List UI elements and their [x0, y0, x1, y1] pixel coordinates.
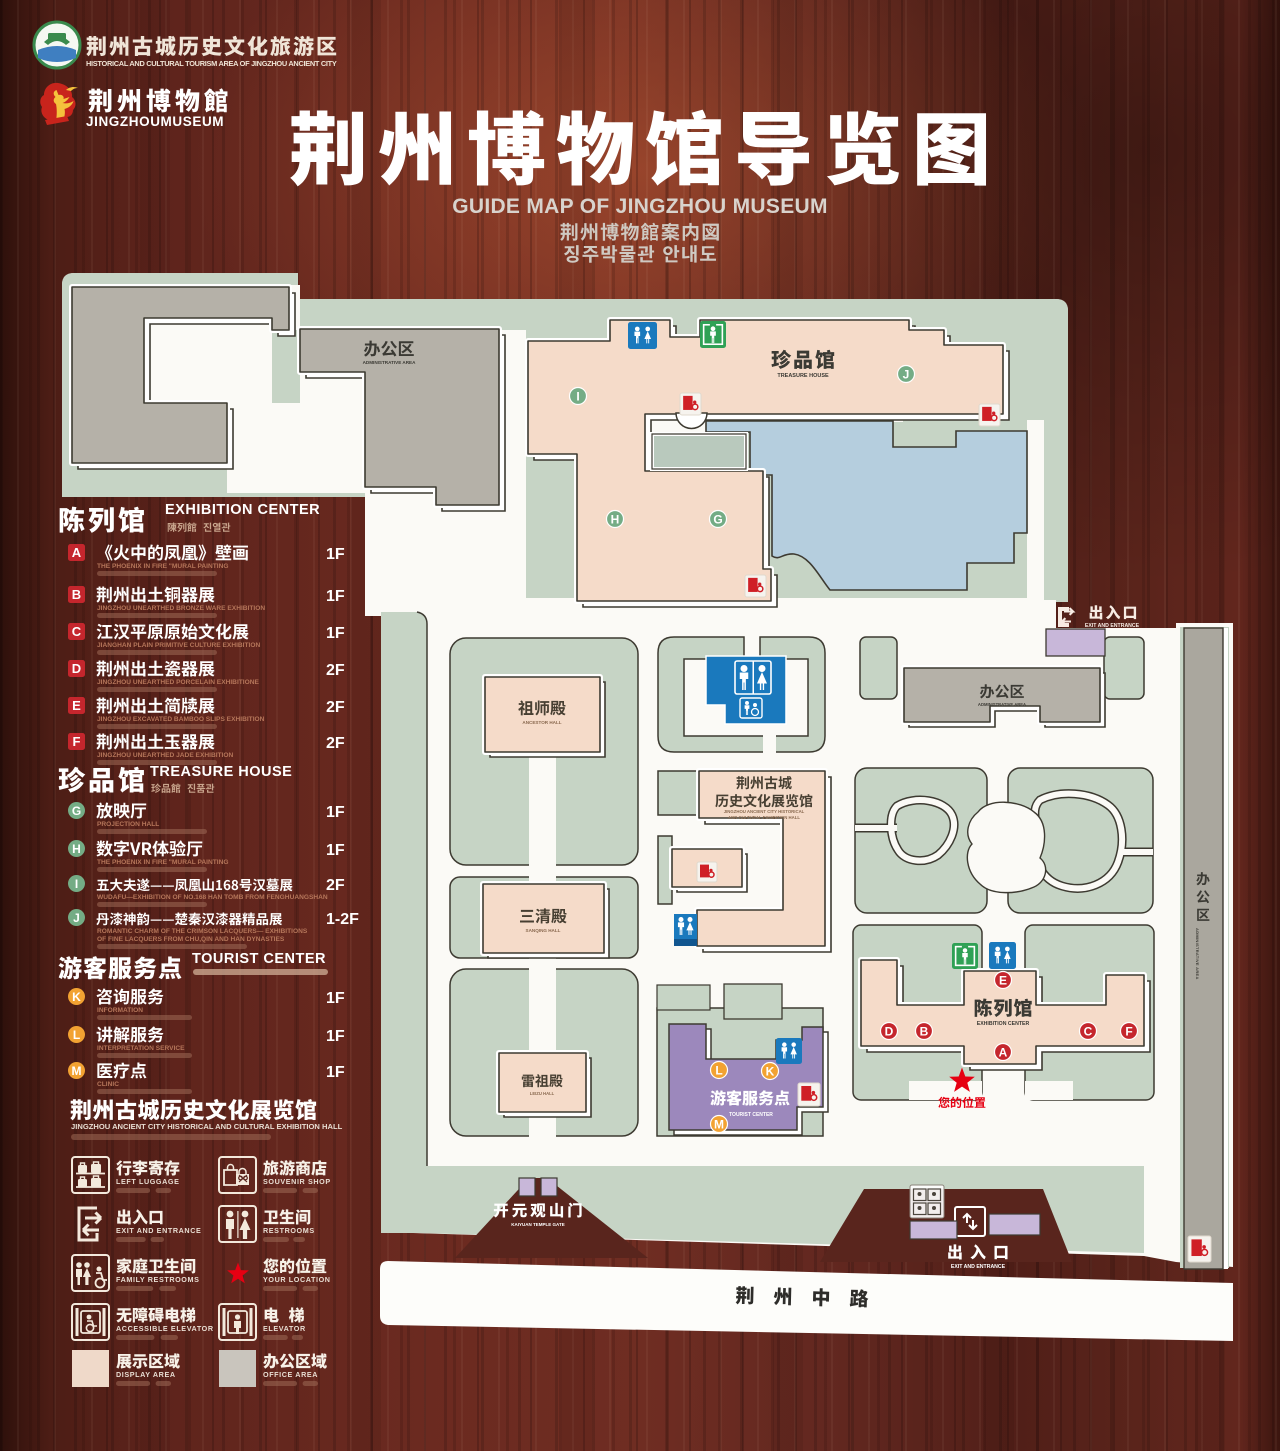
svg-text:L: L: [715, 1063, 722, 1077]
svg-text:INFORMATION: INFORMATION: [97, 1007, 143, 1014]
svg-text:E: E: [72, 698, 81, 713]
svg-text:K: K: [766, 1064, 775, 1078]
svg-text:G: G: [72, 804, 81, 818]
svg-text:AND CULTURAL EXHIBITION HALL: AND CULTURAL EXHIBITION HALL: [728, 815, 800, 820]
svg-text:PROJECTION HALL: PROJECTION HALL: [97, 821, 159, 828]
svg-text:B: B: [920, 1024, 929, 1038]
svg-text:ACCESSIBLE ELEVATOR: ACCESSIBLE ELEVATOR: [116, 1324, 214, 1333]
svg-text:2F: 2F: [326, 735, 345, 752]
svg-text:H: H: [72, 842, 81, 856]
svg-text:RESTROOMS: RESTROOMS: [263, 1226, 315, 1235]
svg-text:THE PHOENIX IN FIRE "MURAL PAI: THE PHOENIX IN FIRE "MURAL PAINTING: [97, 859, 228, 866]
svg-text:GUIDE MAP OF JINGZHOU MUSEUM: GUIDE MAP OF JINGZHOU MUSEUM: [452, 195, 828, 218]
svg-text:JINGZHOU UNEARTHED BRONZE WARE: JINGZHOU UNEARTHED BRONZE WARE EXHIBITIO…: [97, 605, 265, 612]
svg-text:M: M: [72, 1064, 82, 1078]
svg-text:OFFICE AREA: OFFICE AREA: [263, 1370, 318, 1379]
svg-text:JIANGHAN PLAIN PRIMITIVE CULTU: JIANGHAN PLAIN PRIMITIVE CULTURE EXHIBIT…: [97, 642, 261, 649]
svg-text:D: D: [885, 1024, 894, 1038]
svg-text:EXHIBITION CENTER: EXHIBITION CENTER: [165, 502, 320, 518]
svg-text:1F: 1F: [326, 804, 345, 821]
svg-text:A: A: [999, 1045, 1008, 1059]
svg-text:JINGZHOU ANCIENT CITY HISTORIC: JINGZHOU ANCIENT CITY HISTORICAL: [724, 809, 805, 814]
svg-text:EXIT AND ENTRANCE: EXIT AND ENTRANCE: [1085, 623, 1140, 629]
svg-text:F: F: [1125, 1024, 1132, 1038]
svg-text:ELEVATOR: ELEVATOR: [263, 1324, 306, 1333]
svg-text:1F: 1F: [326, 1064, 345, 1081]
svg-text:H: H: [611, 512, 620, 526]
svg-text:JINGZHOU ANCIENT CITY HISTORIC: JINGZHOU ANCIENT CITY HISTORICAL AND CUL…: [71, 1122, 343, 1131]
svg-text:TOURIST CENTER: TOURIST CENTER: [729, 1112, 773, 1118]
svg-text:C: C: [72, 624, 82, 639]
svg-text:KAIYUAN TEMPLE GATE: KAIYUAN TEMPLE GATE: [511, 1222, 564, 1227]
svg-text:C: C: [1084, 1024, 1093, 1038]
svg-text:ROMANTIC CHARM OF THE CRIMSON: ROMANTIC CHARM OF THE CRIMSON LACQUERS— …: [97, 928, 308, 935]
svg-text:SANQING HALL: SANQING HALL: [526, 928, 561, 933]
svg-text:ADMINISTRATIVE AREA: ADMINISTRATIVE AREA: [978, 702, 1026, 707]
svg-text:1F: 1F: [326, 842, 345, 859]
svg-text:A: A: [72, 545, 82, 560]
svg-text:DISPLAY AREA: DISPLAY AREA: [116, 1370, 176, 1379]
svg-text:E: E: [999, 973, 1007, 987]
svg-text:THE PHOENIX IN FIRE "MURAL PAI: THE PHOENIX IN FIRE "MURAL PAINTING: [97, 563, 228, 570]
svg-text:CLINIC: CLINIC: [97, 1081, 119, 1088]
svg-text:SOUVENIR SHOP: SOUVENIR SHOP: [263, 1177, 331, 1186]
svg-text:2F: 2F: [326, 877, 345, 894]
svg-text:I: I: [75, 877, 78, 891]
svg-text:OF FINE LACQUERS FROM CHU,QIN: OF FINE LACQUERS FROM CHU,QIN AND HAN DY…: [97, 936, 285, 943]
svg-text:HISTORICAL AND CULTURAL TOURIS: HISTORICAL AND CULTURAL TOURISM AREA OF …: [86, 59, 337, 68]
svg-text:L: L: [73, 1028, 80, 1042]
svg-text:J: J: [903, 367, 910, 381]
svg-text:2F: 2F: [326, 662, 345, 679]
svg-text:JINGZHOU UNEARTHED PORCELAIN E: JINGZHOU UNEARTHED PORCELAIN EXHIBITIONE: [97, 679, 260, 686]
svg-text:ADMINISTRATIVE AREA: ADMINISTRATIVE AREA: [363, 360, 417, 365]
svg-text:1F: 1F: [326, 588, 345, 605]
svg-text:INTERPRETATION SERVICE: INTERPRETATION SERVICE: [97, 1045, 185, 1052]
svg-text:EXIT AND ENTRANCE: EXIT AND ENTRANCE: [951, 1264, 1006, 1270]
svg-text:FAMILY RESTROOMS: FAMILY RESTROOMS: [116, 1275, 199, 1284]
svg-text:1F: 1F: [326, 546, 345, 563]
svg-text:K: K: [72, 990, 81, 1004]
svg-text:EXHIBITION CENTER: EXHIBITION CENTER: [977, 1021, 1030, 1027]
svg-text:TREASURE HOUSE: TREASURE HOUSE: [150, 764, 292, 780]
svg-text:1F: 1F: [326, 1028, 345, 1045]
svg-text:YOUR LOCATION: YOUR LOCATION: [263, 1275, 331, 1284]
svg-text:JINGZHOU EXCAVATED BAMBOO SLIP: JINGZHOU EXCAVATED BAMBOO SLIPS EXHIBITI…: [97, 716, 265, 723]
svg-text:EXIT AND ENTRANCE: EXIT AND ENTRANCE: [116, 1226, 201, 1235]
svg-text:B: B: [72, 587, 81, 602]
svg-text:2F: 2F: [326, 699, 345, 716]
svg-text:D: D: [72, 661, 81, 676]
svg-text:G: G: [713, 512, 722, 526]
svg-text:1-2F: 1-2F: [326, 911, 359, 928]
svg-text:F: F: [73, 734, 81, 749]
svg-text:JINGZHOU UNEARTHED JADE EXHIBI: JINGZHOU UNEARTHED JADE EXHIBITION: [97, 752, 234, 759]
svg-text:1F: 1F: [326, 990, 345, 1007]
svg-text:JINGZHOUMUSEUM: JINGZHOUMUSEUM: [86, 114, 224, 129]
svg-text:ANCESTOR HALL: ANCESTOR HALL: [522, 720, 561, 725]
svg-text:I: I: [576, 389, 579, 403]
svg-text:WUDAFU—EXHIBITION OF NO.168 HA: WUDAFU—EXHIBITION OF NO.168 HAN TOMB FRO…: [97, 894, 328, 901]
svg-text:LEFT LUGGAGE: LEFT LUGGAGE: [116, 1177, 180, 1186]
svg-text:J: J: [73, 911, 80, 925]
svg-text:1F: 1F: [326, 625, 345, 642]
svg-text:M: M: [714, 1117, 724, 1131]
svg-text:TOURIST CENTER: TOURIST CENTER: [192, 951, 326, 967]
svg-text:TREASURE HOUSE: TREASURE HOUSE: [777, 373, 829, 379]
svg-text:ADMINISTRATIVE AREA: ADMINISTRATIVE AREA: [1195, 928, 1200, 980]
svg-text:LEIZU HALL: LEIZU HALL: [530, 1091, 555, 1096]
